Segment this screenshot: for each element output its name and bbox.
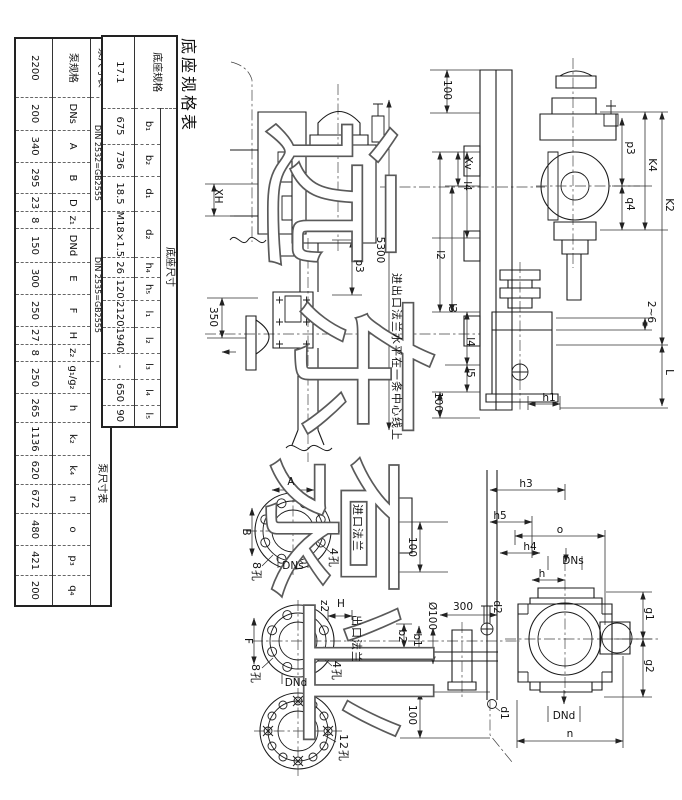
pump-table-header-cell: B bbox=[53, 162, 91, 194]
dim-label-z2: z2 bbox=[318, 600, 330, 612]
svg-text:东: 东 bbox=[270, 291, 447, 443]
dim-label-l4-lower: l4 bbox=[464, 337, 476, 347]
dim-label-p3-side: p3 bbox=[624, 141, 636, 154]
dim-label-l2: l2 bbox=[434, 250, 446, 260]
pump-table-header-cell: h bbox=[53, 394, 91, 422]
pump-table-value-cell: 295 bbox=[15, 162, 53, 194]
pump-table-header-cell: DNd bbox=[53, 229, 91, 263]
dim-label-xv: Xv bbox=[462, 156, 474, 169]
pump-table-value-cell: 421 bbox=[15, 546, 53, 575]
dim-label-gap: 2~6 bbox=[645, 301, 657, 323]
watermark: 远 东 泵 业 bbox=[242, 118, 449, 748]
pump-table-value-cell: 1136 bbox=[15, 422, 53, 455]
dim-label-f: F bbox=[242, 638, 254, 644]
dim-label-dim100-inlet: 100 bbox=[406, 537, 418, 557]
dim-label-h-cap: H bbox=[337, 598, 345, 610]
dim-label-h3: h3 bbox=[519, 478, 532, 490]
pump-table-value-cell: 2200 bbox=[15, 38, 53, 97]
base-table-value-cell: 18.5 bbox=[102, 176, 135, 211]
dim-label-h: h bbox=[539, 568, 546, 580]
base-table-spec-header: 底座规格 bbox=[135, 36, 177, 108]
pump-table-value-cell: 150 bbox=[15, 229, 53, 263]
dim-label-holes4-in: 4孔 bbox=[326, 548, 342, 568]
dim-label-l4-upper: l4 bbox=[461, 181, 473, 191]
dim-label-dns-end: DNs bbox=[562, 555, 583, 567]
dim-label-g2: g2 bbox=[643, 659, 655, 672]
dim-label-h4: h4 bbox=[523, 541, 536, 553]
dim-label-dim300: 300 bbox=[453, 601, 473, 613]
base-table-value-cell: 650 bbox=[102, 380, 135, 406]
dim-label-d1: d1 bbox=[498, 706, 510, 719]
dim-label-L: L bbox=[663, 369, 675, 375]
base-dimensions-table: 底座规格底座尺寸b₁b₂d₁d₂h₄h₅l₁l₂l₃l₄l₅17.1675736… bbox=[101, 35, 178, 428]
base-dims-group-header: 底座尺寸 bbox=[161, 108, 177, 427]
base-table-value-cell: 2120 bbox=[102, 301, 135, 327]
pump-table-value-cell: 672 bbox=[15, 485, 53, 513]
dim-label-dnd-end: DNd bbox=[553, 710, 576, 722]
base-table-header-cell: h₄ bbox=[135, 258, 161, 278]
pump-table-header-cell: k₂ bbox=[53, 422, 91, 455]
pump-table-value-cell: 265 bbox=[15, 394, 53, 422]
dim-label-xh: XH bbox=[212, 188, 224, 203]
base-table-header-cell: b₂ bbox=[135, 144, 161, 176]
dim-label-dnd-outlet: DNd bbox=[285, 677, 308, 689]
base-table-value-cell: 26 bbox=[102, 258, 135, 278]
svg-text:远: 远 bbox=[242, 118, 419, 270]
pump-table-header-cell: g₁/g₂ bbox=[53, 361, 91, 394]
dim-label-dim100-mid: 100 bbox=[432, 392, 444, 412]
pump-table-value-cell: 200 bbox=[15, 97, 53, 130]
dim-label-holes8-out: 8孔 bbox=[248, 664, 264, 684]
base-table-header-cell: h₅ bbox=[135, 278, 161, 301]
base-table-value-cell: M18×1.5 bbox=[102, 211, 135, 258]
dim-label-dns-inlet: DNs bbox=[282, 560, 303, 572]
dim-label-holes8-in: 8孔 bbox=[249, 562, 265, 582]
base-table-value-cell: 1940 bbox=[102, 327, 135, 353]
dim-label-holes12: 12孔 bbox=[336, 734, 352, 762]
pump-table-value-cell: 250 bbox=[15, 295, 53, 327]
dim-label-k4: K4 bbox=[646, 158, 658, 172]
dim-label-dia100: Ø100 bbox=[426, 602, 438, 630]
base-table-value-cell: 120 bbox=[102, 278, 135, 301]
base-table-value-cell: - bbox=[102, 354, 135, 380]
pump-table-header-cell: q₄ bbox=[53, 575, 91, 606]
pump-table-value-cell: 23 bbox=[15, 194, 53, 212]
base-table-header-cell: d₂ bbox=[135, 211, 161, 258]
dim-label-l3: l3 bbox=[446, 303, 458, 313]
sheet-title: 底座规格表 bbox=[178, 38, 202, 198]
pump-table-header-cell: p₃ bbox=[53, 546, 91, 575]
dim-label-b: B bbox=[240, 528, 252, 535]
pump-table-header-cell: n bbox=[53, 485, 91, 513]
pump-table-value-cell: 8 bbox=[15, 344, 53, 361]
pump-table-header-cell: A bbox=[53, 130, 91, 162]
pump-table-value-cell: 250 bbox=[15, 361, 53, 394]
pump-table-header-cell: DNs bbox=[53, 97, 91, 130]
pump-table-value-cell: 27 bbox=[15, 326, 53, 344]
pump-table-header-cell: z₂ bbox=[53, 344, 91, 361]
pump-table-value-cell: 620 bbox=[15, 456, 53, 485]
dim-label-h5: h5 bbox=[493, 510, 506, 522]
base-table-header-cell: l₅ bbox=[135, 406, 161, 427]
dim-label-a: A bbox=[287, 476, 294, 488]
pump-table-header-cell: z₁ bbox=[53, 212, 91, 229]
pump-table-value-cell: 480 bbox=[15, 513, 53, 546]
base-table-header-cell: l₄ bbox=[135, 380, 161, 406]
dim-label-inlet-flange: 进口法兰 bbox=[350, 504, 366, 552]
base-table-value-cell: 736 bbox=[102, 144, 135, 176]
pump-table-value-cell: 200 bbox=[15, 575, 53, 606]
pump-table-header-cell: o bbox=[53, 513, 91, 546]
pump-table-value-cell: 340 bbox=[15, 130, 53, 162]
dim-label-outlet-flange: 出口法兰 bbox=[349, 615, 365, 663]
base-table-header-cell: b₁ bbox=[135, 108, 161, 144]
dim-label-h1: h1 bbox=[542, 392, 555, 404]
pump-table-header-cell: 泵规格 bbox=[53, 38, 91, 97]
dim-label-k2: K2 bbox=[663, 198, 675, 212]
pump-table-header-cell: E bbox=[53, 262, 91, 294]
pump-dimensions-table: 泵尺寸表入口法兰 PN10DIN 2532=GB2555出口法兰 PN40DIN… bbox=[14, 37, 112, 607]
pump-table-header-cell: k₄ bbox=[53, 456, 91, 485]
dim-label-dim100-top: 100 bbox=[441, 80, 453, 100]
base-table-header-cell: l₃ bbox=[135, 354, 161, 380]
dim-label-d2: d2 bbox=[491, 600, 503, 613]
svg-text:泵: 泵 bbox=[242, 451, 419, 603]
pump-table-header-cell: H bbox=[53, 326, 91, 344]
dim-label-dim350: 350 bbox=[207, 307, 219, 327]
dim-label-b2: b2 bbox=[396, 629, 408, 642]
pump-unit-side-view bbox=[486, 58, 668, 410]
dim-label-g1: g1 bbox=[643, 607, 655, 620]
base-table-value-cell: 90 bbox=[102, 406, 135, 427]
dim-label-note5300: 5300 bbox=[374, 237, 386, 264]
dim-label-q4: q4 bbox=[624, 197, 636, 210]
pump-table-value-cell: 300 bbox=[15, 262, 53, 294]
dim-label-note: 进出口法兰水平在一条中心线上 bbox=[389, 273, 405, 441]
pump-table-header-cell: D bbox=[53, 194, 91, 212]
base-table-header-cell: l₂ bbox=[135, 327, 161, 353]
base-table-value-cell: 675 bbox=[102, 108, 135, 144]
engineering-drawing-sheet: 远 东 泵 业 底座规格表 泵尺寸表入口法兰 PN10DIN 2532=GB25… bbox=[0, 0, 682, 800]
dim-label-p3-front: p3 bbox=[353, 259, 365, 272]
dim-label-n: n bbox=[567, 728, 574, 740]
base-table-header-cell: d₁ bbox=[135, 176, 161, 211]
base-table-header-cell: l₁ bbox=[135, 301, 161, 327]
dim-label-holes4-out: 4孔 bbox=[329, 661, 345, 681]
base-table-value-cell: 17.1 bbox=[102, 36, 135, 108]
pump-table-value-cell: 8 bbox=[15, 212, 53, 229]
dim-label-dim100-bot: 100 bbox=[406, 705, 418, 725]
pump-table-header-cell: F bbox=[53, 295, 91, 327]
dim-label-b1: b1 bbox=[411, 633, 423, 646]
dim-label-l5: l5 bbox=[464, 368, 476, 378]
dim-label-o: o bbox=[557, 524, 563, 536]
